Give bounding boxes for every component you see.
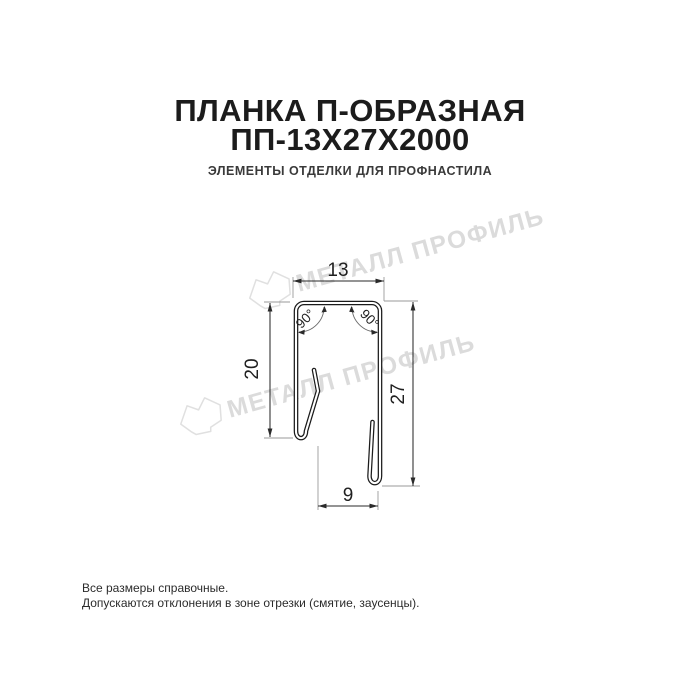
footer-note-1: Все размеры справочные. bbox=[82, 581, 419, 596]
arrow-right-icon bbox=[376, 279, 385, 284]
metall-profil-logo-icon bbox=[176, 394, 227, 438]
dimension-label-bottom-width: 9 bbox=[343, 485, 354, 506]
watermark-text: МЕТАЛЛ ПРОФИЛЬ bbox=[293, 203, 547, 298]
arrow-down-icon bbox=[268, 429, 273, 438]
dimension-bottom-width: 9 bbox=[318, 485, 378, 508]
page: ПЛАНКА П-ОБРАЗНАЯ ПП-13Х27Х2000 ЭЛЕМЕНТЫ… bbox=[0, 0, 700, 700]
watermark: МЕТАЛЛ ПРОФИЛЬ bbox=[176, 324, 479, 438]
arrow-right-icon bbox=[370, 504, 379, 509]
arc-arrow-icon bbox=[349, 306, 354, 313]
footer-notes: Все размеры справочные. Допускаются откл… bbox=[82, 581, 419, 610]
dimension-label-top-width: 13 bbox=[327, 260, 348, 281]
angle-annotation-right: 90° bbox=[349, 306, 382, 335]
dimension-label-left-height: 20 bbox=[242, 358, 263, 379]
footer-note-2: Допускаются отклонения в зоне отрезки (с… bbox=[82, 596, 419, 611]
dimension-right-height: 27 bbox=[388, 302, 415, 486]
arrow-down-icon bbox=[411, 478, 416, 487]
dimension-label-right-height: 27 bbox=[388, 383, 409, 404]
arrow-left-icon bbox=[318, 504, 327, 509]
arrow-up-icon bbox=[411, 302, 416, 311]
watermark: МЕТАЛЛ ПРОФИЛЬ bbox=[245, 198, 548, 312]
arc-arrow-icon bbox=[322, 306, 327, 313]
